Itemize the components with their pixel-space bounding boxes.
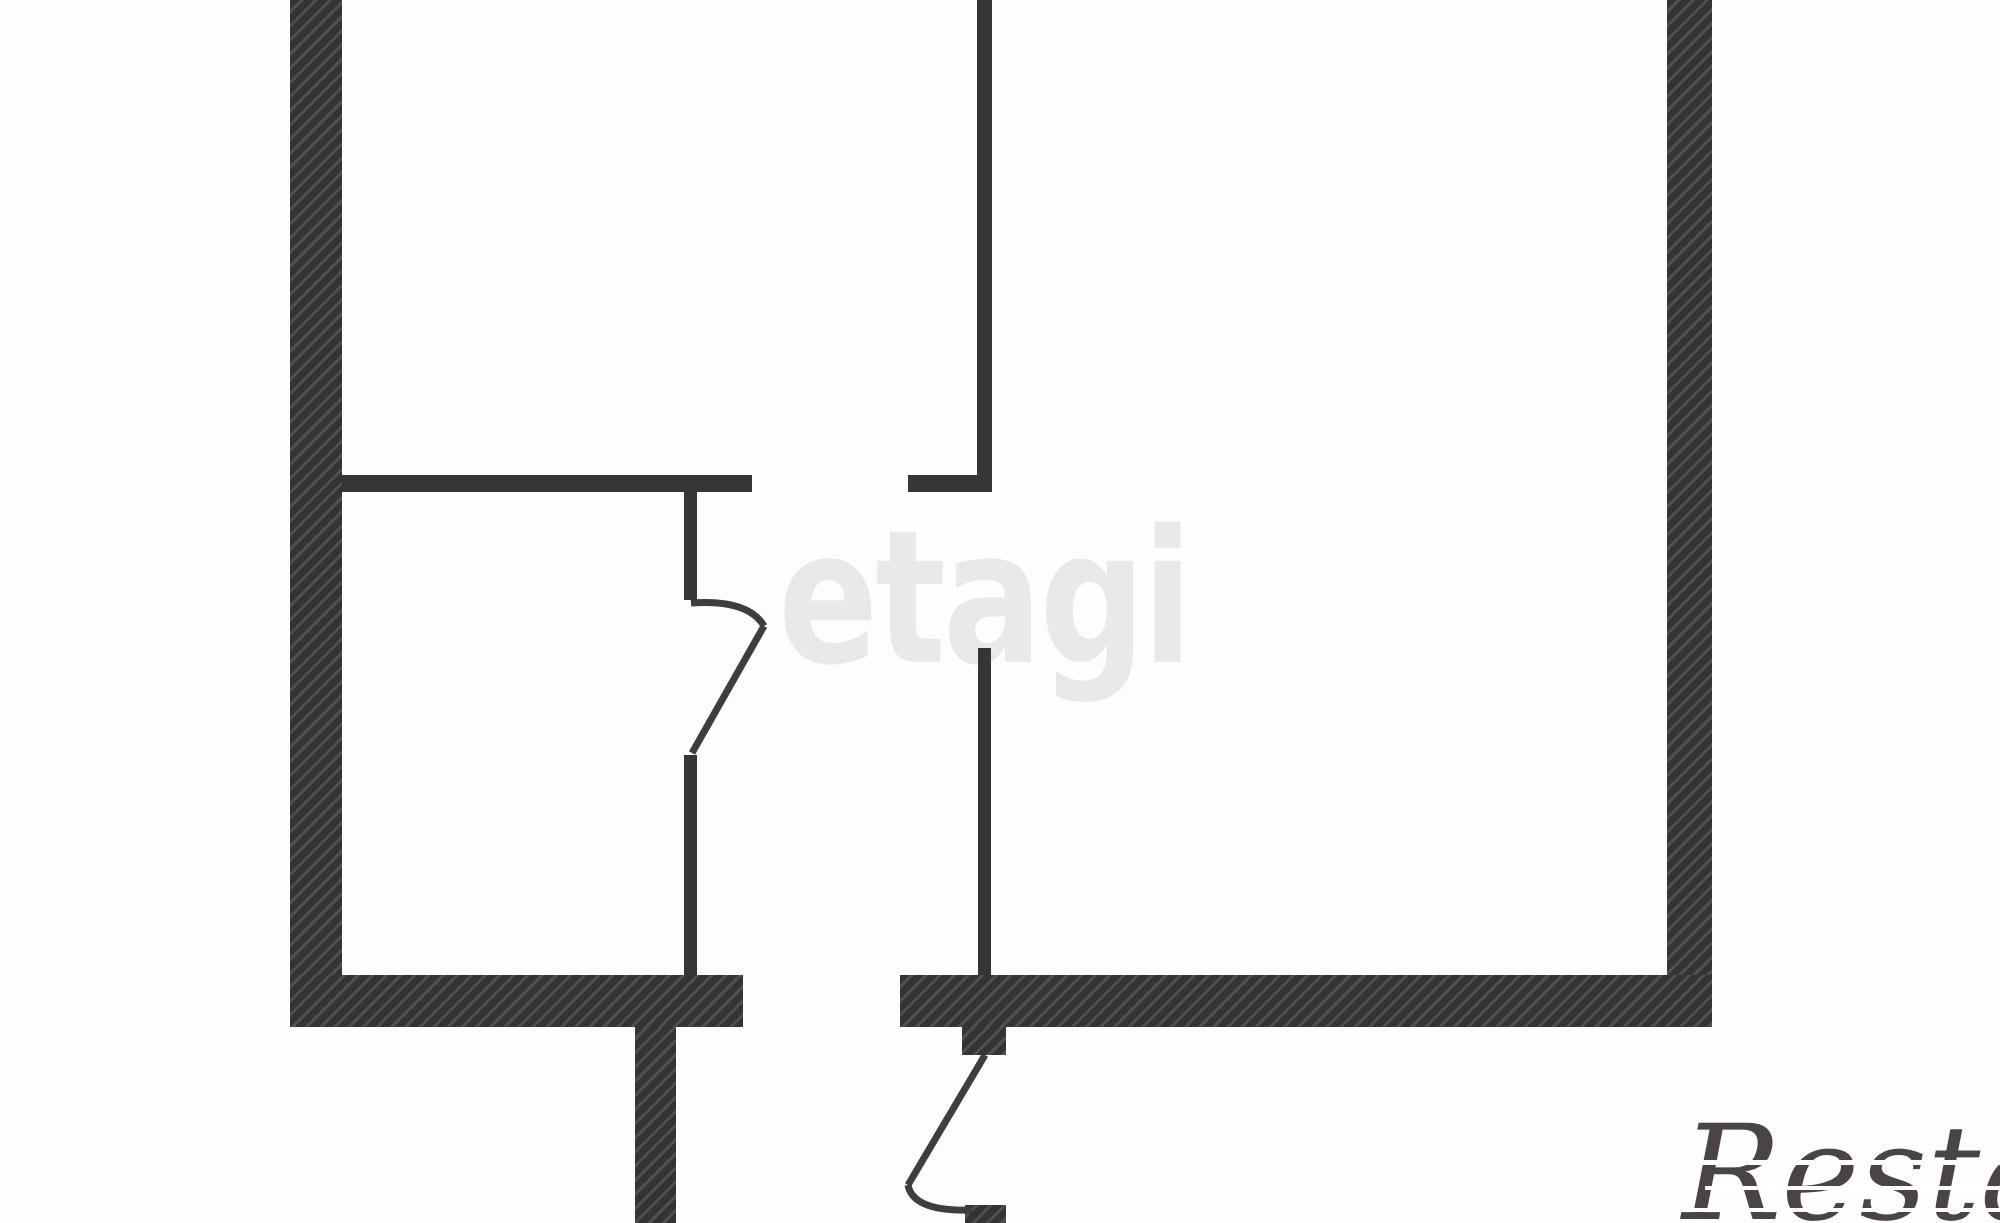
floorplan-canvas: etagi Restate: [0, 0, 2000, 1223]
watermark-white-streak: [1705, 1186, 2000, 1190]
interior-door-swing-arc: [691, 602, 764, 626]
door-swing-lines: [0, 0, 2000, 1223]
entry-door-swing-arc: [908, 1185, 972, 1210]
watermark-white-streak: [1672, 1160, 2000, 1165]
interior-door-leaf: [692, 626, 764, 753]
watermark-restate: Restate: [1682, 1108, 2000, 1223]
entry-door-leaf: [908, 1055, 985, 1185]
watermark-white-streak: [1690, 1208, 2000, 1212]
